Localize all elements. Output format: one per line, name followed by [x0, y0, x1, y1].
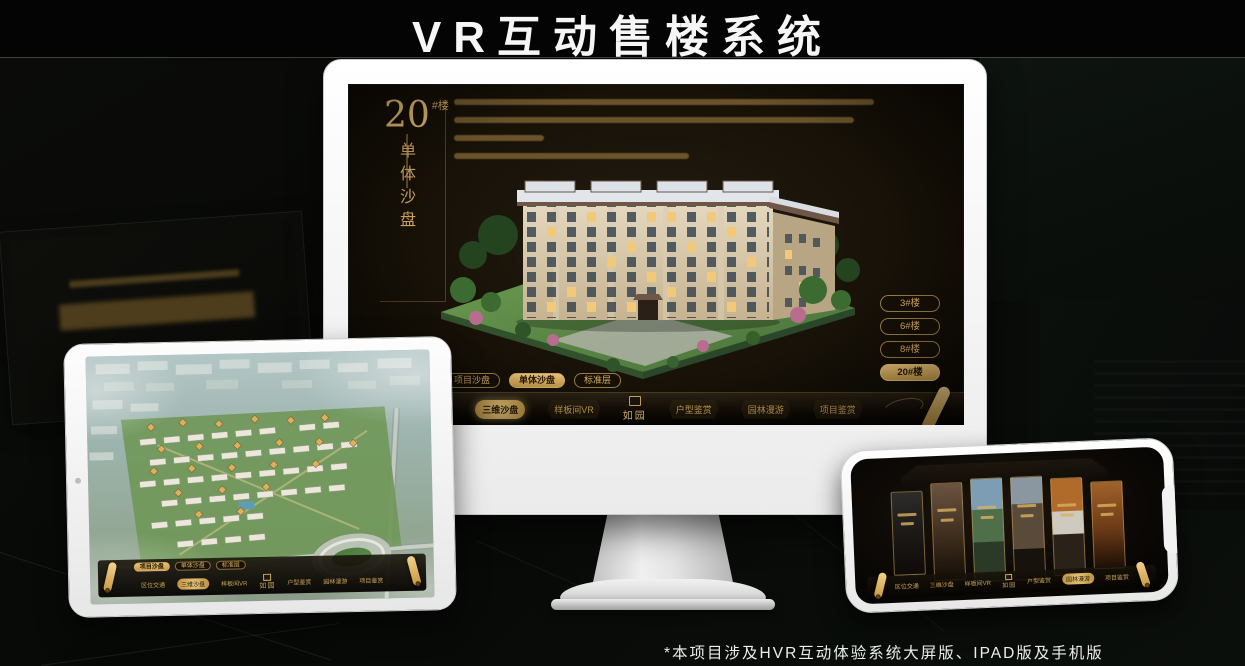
tablet-nav-3d-sandtable-selected[interactable]: 三维沙盘 — [177, 578, 209, 590]
tablet-brand-logo: 如园 — [259, 574, 275, 591]
phone-brand-logo-text: 如园 — [1002, 580, 1016, 590]
subtab-single-sandtable-selected[interactable]: 单体沙盘 — [509, 373, 565, 388]
tablet-nav-project-gallery[interactable]: 项目鉴赏 — [359, 575, 383, 585]
monitor-stand-neck — [592, 513, 734, 587]
bg-map-line — [41, 623, 338, 666]
nav-item-garden-roam[interactable]: 园林漫游 — [741, 400, 791, 419]
gallery-card-shelf[interactable] — [1090, 480, 1126, 569]
phone-brand-logo: 如园 — [1002, 574, 1017, 590]
nav-item-showroom-vr[interactable]: 样板间VR — [547, 400, 601, 419]
plaque-large-text-blur — [58, 291, 254, 331]
floor-button-8[interactable]: 8#楼 — [880, 341, 940, 358]
tablet-nav-location[interactable]: 区位交通 — [141, 580, 165, 590]
phone-device: 区位交通 三维沙盘 样板间VR 如园 户型鉴赏 园林漫游 项目鉴赏 — [840, 437, 1180, 614]
intro-text-line — [454, 99, 874, 105]
phone-nav-unit-gallery[interactable]: 户型鉴赏 — [1027, 575, 1051, 585]
tablet-device: 项目沙盘 单体沙盘 标准层 区位交通 三维沙盘 样板间VR 如园 户型鉴赏 园林… — [63, 336, 457, 618]
tablet-nav-showroom-vr[interactable]: 样板间VR — [221, 578, 248, 588]
intro-text-line — [454, 117, 854, 123]
promo-canvas: VR互动售楼系统 20#楼 单体沙盘 — [0, 0, 1245, 666]
footnote-text: *本项目涉及HVR互动体验系统大屏版、IPAD版及手机版 — [664, 641, 1104, 663]
tablet-subtab-single[interactable]: 单体沙盘 — [175, 561, 211, 571]
monitor-stand-base — [551, 599, 775, 610]
tablet-nav-bar: 项目沙盘 单体沙盘 标准层 区位交通 三维沙盘 样板间VR 如园 户型鉴赏 园林… — [98, 554, 427, 598]
phone-nav-showroom-vr[interactable]: 样板间VR — [965, 578, 992, 588]
tablet-subtab-project-selected[interactable]: 项目沙盘 — [134, 562, 170, 572]
gallery-card-building[interactable] — [1009, 476, 1045, 581]
brand-logo-text: 如园 — [623, 407, 647, 422]
tablet-subtabs: 项目沙盘 单体沙盘 标准层 — [134, 560, 246, 571]
seal-icon — [629, 396, 641, 406]
floor-button-20-selected[interactable]: 20#楼 — [880, 364, 940, 381]
phone-notch — [1161, 485, 1177, 553]
tablet-subtab-standard[interactable]: 标准层 — [216, 560, 246, 570]
tablet-screen[interactable]: 项目沙盘 单体沙盘 标准层 区位交通 三维沙盘 样板间VR 如园 户型鉴赏 园林… — [85, 349, 434, 604]
page-title: VR互动售楼系统 — [0, 1, 1245, 65]
nav-item-unit-gallery[interactable]: 户型鉴赏 — [669, 400, 719, 419]
gallery-card-garden[interactable] — [970, 477, 1006, 582]
tablet-nav-unit-gallery[interactable]: 户型鉴赏 — [287, 577, 311, 587]
intro-text-line — [454, 135, 544, 141]
unit-number: 20 — [384, 95, 430, 136]
camera-icon — [75, 478, 81, 484]
gallery-card-interior[interactable] — [890, 491, 925, 576]
nav-item-3d-sandtable-selected[interactable]: 三维沙盘 — [475, 400, 525, 419]
tablet-nav-items: 区位交通 三维沙盘 样板间VR 如园 户型鉴赏 园林漫游 项目鉴赏 — [98, 571, 426, 595]
nav-item-project-gallery[interactable]: 项目鉴赏 — [813, 400, 863, 419]
phone-screen[interactable]: 区位交通 三维沙盘 样板间VR 如园 户型鉴赏 园林漫游 项目鉴赏 — [850, 447, 1169, 605]
floor-button-6[interactable]: 6#楼 — [880, 318, 940, 335]
floor-button-3[interactable]: 3#楼 — [880, 295, 940, 312]
phone-nav-project-gallery[interactable]: 项目鉴赏 — [1105, 572, 1129, 582]
subtab-standard-floor[interactable]: 标准层 — [574, 373, 621, 388]
bg-collage-topright — [980, 57, 1245, 302]
brand-logo: 如园 — [623, 396, 647, 422]
sandtable-subtabs: 项目沙盘 单体沙盘 标准层 — [444, 373, 621, 388]
phone-nav-garden-roam-selected[interactable]: 园林漫游 — [1062, 573, 1094, 585]
subtab-project-sandtable[interactable]: 项目沙盘 — [444, 373, 500, 388]
gallery-card-autumn[interactable] — [1050, 477, 1086, 576]
gallery-card-lobby[interactable] — [930, 482, 966, 581]
floor-button-group: 3#楼 6#楼 8#楼 20#楼 — [880, 295, 940, 381]
tablet-nav-garden-roam[interactable]: 园林漫游 — [323, 576, 347, 586]
phone-nav-location[interactable]: 区位交通 — [895, 581, 919, 591]
phone-nav-3d-sandtable[interactable]: 三维沙盘 — [930, 579, 954, 589]
tablet-brand-logo-text: 如园 — [259, 581, 275, 591]
unit-suffix: #楼 — [432, 100, 449, 112]
plaque-small-text-blur — [69, 269, 239, 288]
building-model-illustration — [403, 150, 883, 385]
